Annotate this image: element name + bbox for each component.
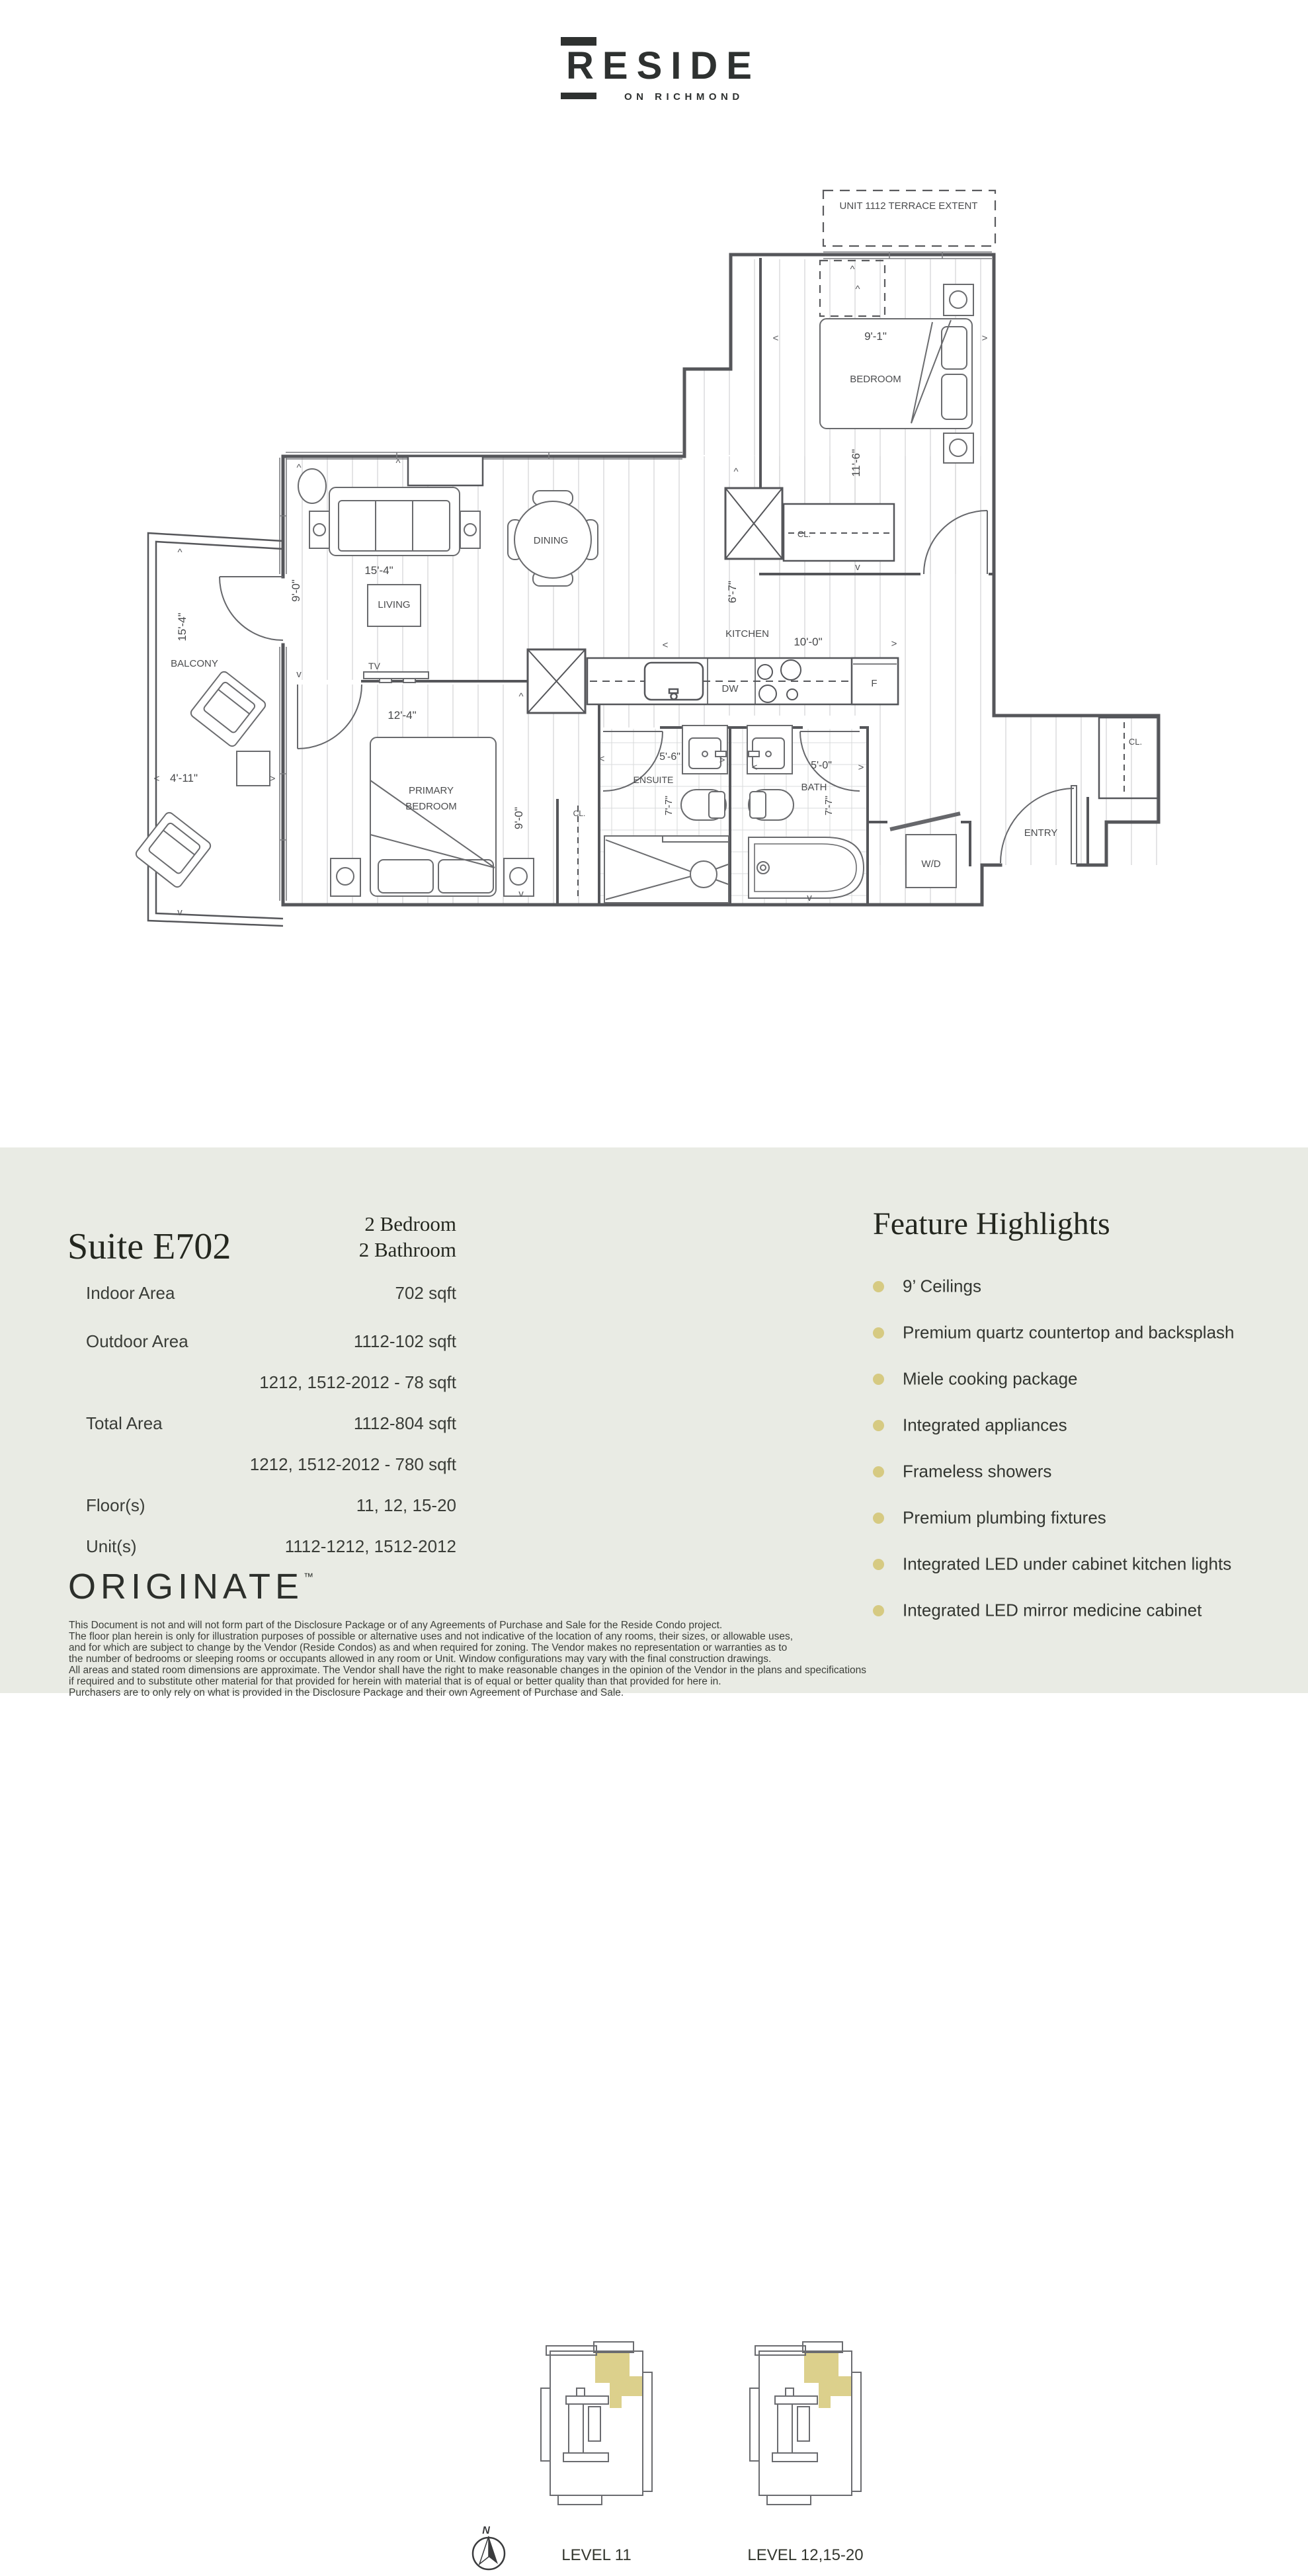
logo-bar-bottom — [561, 93, 596, 99]
tv-console — [364, 672, 429, 679]
keyplate-level-11 — [541, 2342, 652, 2505]
balcony-table — [237, 751, 270, 786]
dim-dining-kitchen: 6'-7" — [726, 581, 739, 603]
svg-text:>: > — [891, 638, 897, 649]
dim-bedroom-h: 11'-6" — [850, 449, 862, 477]
label-dw: DW — [722, 683, 739, 694]
disclaimer: This Document is not and will not form p… — [69, 1620, 995, 1698]
label-living: LIVING — [378, 599, 410, 610]
keyplate-level-12-20 — [750, 2342, 861, 2505]
svg-text:^: ^ — [296, 462, 301, 474]
dim-bedroom-w: 9'-1" — [864, 330, 887, 343]
spec-label: Floor(s) — [86, 1495, 145, 1516]
feature-item: Integrated LED under cabinet kitchen lig… — [873, 1553, 1283, 1575]
feature-item: Frameless showers — [873, 1460, 1283, 1482]
svg-text:v: v — [177, 907, 183, 918]
label-fridge: F — [871, 678, 877, 689]
label-ensuite: ENSUITE — [634, 774, 674, 785]
spec-row-total-area-2: 1212, 1512-2012 - 780 sqft — [86, 1454, 456, 1475]
svg-text:<: < — [154, 773, 160, 784]
info-panel: Suite E702 2 Bedroom 2 Bathroom Indoor A… — [0, 1147, 1308, 1693]
spec-value: 1112-804 sqft — [354, 1413, 456, 1434]
spec-row-indoor-area: Indoor Area 702 sqft — [86, 1283, 456, 1304]
compass-icon: N — [473, 2525, 505, 2569]
disclaimer-line: the number of bedrooms or sleeping rooms… — [69, 1653, 995, 1665]
shower — [604, 836, 729, 903]
bullet-icon — [873, 1559, 884, 1570]
feature-item: Premium plumbing fixtures — [873, 1507, 1283, 1528]
balcony — [134, 533, 283, 926]
spec-row-outdoor-area-2: 1212, 1512-2012 - 78 sqft — [86, 1372, 456, 1393]
disclaimer-line: This Document is not and will not form p… — [69, 1620, 995, 1631]
label-bath: BATH — [801, 782, 827, 793]
floorplan-sheet: { "brand": { "name": "RESIDE", "tagline"… — [0, 0, 1308, 1693]
svg-text:^: ^ — [518, 691, 523, 702]
bullet-icon — [873, 1420, 884, 1431]
dim-living-w: 15'-4" — [364, 564, 393, 577]
svg-text:<: < — [599, 753, 605, 765]
bullet-icon — [873, 1605, 884, 1616]
bullet-icon — [873, 1513, 884, 1524]
balcony-chair — [189, 670, 267, 748]
dim-balcony-w: 4'-11" — [170, 772, 198, 784]
svg-text:<: < — [773, 333, 779, 344]
label-tv: TV — [368, 661, 381, 671]
compass-n: N — [482, 2525, 490, 2536]
floor-plan: UNIT 1112 TERRACE EXTENT — [122, 169, 1180, 999]
originate-logo: ORIGINATE™ — [68, 1566, 313, 1607]
brand-logo: RESIDE — [566, 44, 760, 88]
feature-item: Integrated LED mirror medicine cabinet — [873, 1599, 1283, 1621]
svg-text:<: < — [752, 762, 758, 773]
spec-label: Total Area — [86, 1413, 163, 1434]
svg-text:<: < — [663, 640, 669, 651]
svg-text:^: ^ — [855, 284, 860, 295]
level-12-20-label: LEVEL 12,15-20 — [747, 2546, 863, 2564]
spec-value: 1112-102 sqft — [354, 1331, 456, 1352]
svg-text:^: ^ — [733, 466, 738, 478]
label-closet-entry: CL. — [1129, 737, 1142, 747]
svg-text:^: ^ — [850, 264, 854, 275]
suite-specs: Indoor Area 702 sqft Outdoor Area 1112-1… — [86, 1147, 456, 1610]
spec-row-total-area: Total Area 1112-804 sqft — [86, 1413, 456, 1434]
dim-primary-w: 12'-4" — [388, 709, 416, 722]
trademark: ™ — [304, 1571, 313, 1583]
svg-text:v: v — [807, 892, 812, 903]
feature-item: Integrated appliances — [873, 1414, 1283, 1436]
label-balcony: BALCONY — [171, 658, 218, 669]
svg-text:>: > — [270, 773, 276, 784]
spec-label: Outdoor Area — [86, 1331, 188, 1352]
dim-living-h: 9'-0" — [290, 579, 302, 602]
spec-value: 1112-1212, 1512-2012 — [285, 1536, 456, 1557]
features-title: Feature Highlights — [873, 1206, 1110, 1242]
feature-item: Premium quartz countertop and backsplash — [873, 1321, 1283, 1343]
label-entry: ENTRY — [1024, 827, 1058, 839]
feature-item: 9’ Ceilings — [873, 1275, 1283, 1297]
label-primary2: BEDROOM — [405, 801, 457, 812]
label-wd: W/D — [921, 858, 940, 870]
balcony-chair — [134, 811, 212, 889]
spec-label: Unit(s) — [86, 1536, 137, 1557]
svg-text:>: > — [719, 755, 725, 766]
svg-text:v: v — [855, 561, 860, 573]
label-primary1: PRIMARY — [409, 785, 454, 796]
svg-text:^: ^ — [395, 458, 400, 469]
dim-bath-w: 5'-0" — [811, 760, 832, 771]
svg-text:^: ^ — [177, 547, 182, 558]
dim-ensuite-d: 7'-7" — [663, 796, 674, 815]
spec-label: Indoor Area — [86, 1283, 175, 1304]
brand-tagline: ON RICHMOND — [624, 91, 744, 103]
spec-row-units: Unit(s) 1112-1212, 1512-2012 — [86, 1536, 456, 1557]
bullet-icon — [873, 1327, 884, 1339]
label-closet-primary: CL. — [573, 809, 586, 818]
terrace-note: UNIT 1112 TERRACE EXTENT — [840, 200, 978, 212]
ottoman — [298, 469, 326, 503]
bullet-icon — [873, 1466, 884, 1477]
spec-value: 11, 12, 15-20 — [356, 1495, 456, 1516]
kitchen-counter — [587, 658, 898, 704]
feature-item: Miele cooking package — [873, 1368, 1283, 1390]
bathtub — [749, 837, 864, 898]
spec-value: 702 sqft — [395, 1283, 456, 1304]
bullet-icon — [873, 1374, 884, 1385]
dim-balcony-l: 15'-4" — [176, 612, 188, 641]
level-11-label: LEVEL 11 — [561, 2546, 631, 2564]
label-kitchen: KITCHEN — [725, 628, 769, 640]
label-closet-bedroom: CL. — [797, 529, 811, 539]
disclaimer-line: if required and to substitute other mate… — [69, 1676, 995, 1687]
spec-value: 1212, 1512-2012 - 780 sqft — [250, 1454, 456, 1475]
svg-text:>: > — [982, 333, 988, 344]
level-keyplates: N LEVEL 11 LEVEL 12,15-20 — [463, 2331, 873, 2576]
spec-row-outdoor-area: Outdoor Area 1112-102 sqft — [86, 1331, 456, 1352]
disclaimer-line: and for which are subject to change by t… — [69, 1642, 995, 1653]
svg-text:v: v — [296, 669, 302, 680]
label-dining: DINING — [534, 535, 569, 546]
dim-ensuite-w: 5'-6" — [659, 751, 680, 763]
dim-kitchen-w: 10'-0" — [794, 636, 822, 648]
bullet-icon — [873, 1281, 884, 1292]
dim-primary-h: 9'-0" — [512, 807, 525, 829]
spec-row-floors: Floor(s) 11, 12, 15-20 — [86, 1495, 456, 1516]
disclaimer-line: The floor plan herein is only for illust… — [69, 1631, 995, 1642]
feature-highlights: Feature Highlights 9’ Ceilings Premium q… — [873, 1147, 1283, 1650]
disclaimer-line: All areas and stated room dimensions are… — [69, 1665, 995, 1676]
svg-text:>: > — [858, 762, 864, 773]
label-bedroom: BEDROOM — [850, 374, 901, 385]
spec-value: 1212, 1512-2012 - 78 sqft — [259, 1372, 456, 1393]
svg-text:v: v — [518, 888, 524, 899]
dim-bath-d: 7'-7" — [823, 796, 835, 815]
